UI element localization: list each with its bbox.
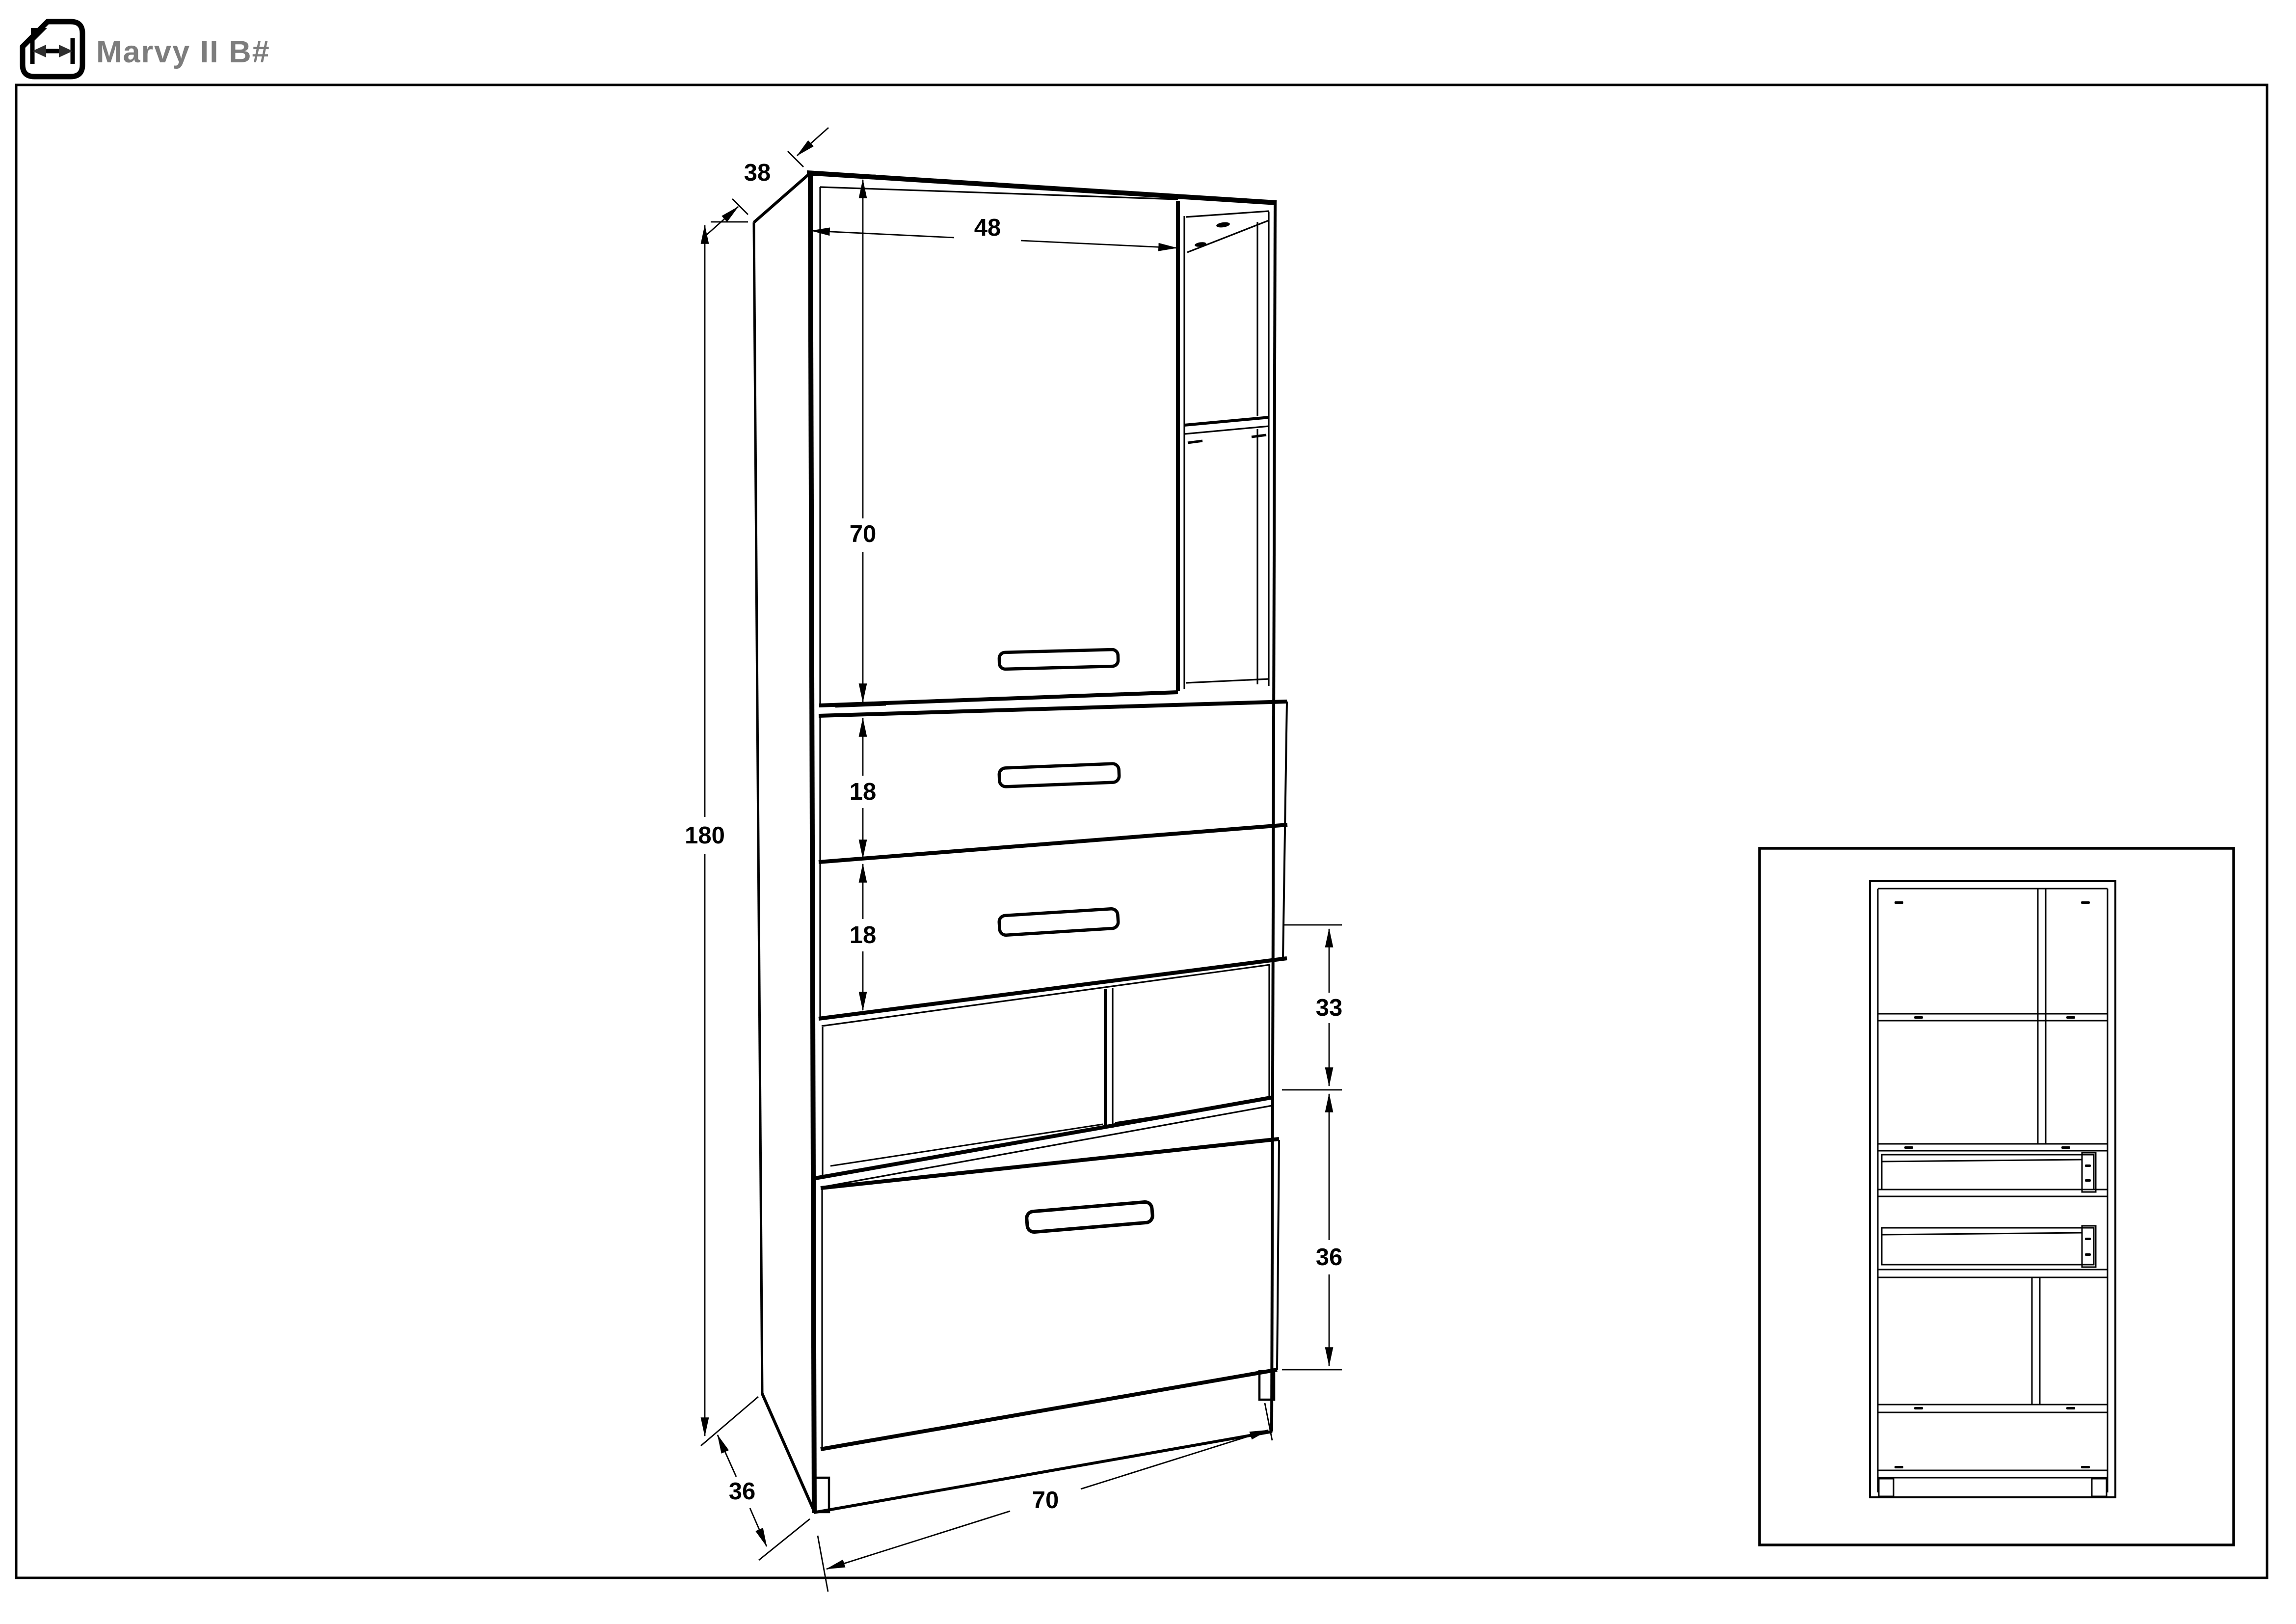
front-view-dividers xyxy=(2032,889,2046,1405)
drawer-fronts xyxy=(819,702,1287,1019)
dimension-label-top-depth: 38 xyxy=(744,160,771,186)
blueprint-canvas: Marvy II B# xyxy=(0,0,2296,1624)
cabinet-isometric-view: 38 48 70 180 xyxy=(685,128,1342,1592)
door-handle xyxy=(999,650,1119,669)
dimension-niche-height: 33 xyxy=(1282,925,1342,1090)
carcass-outline xyxy=(754,172,1277,1513)
front-view-fitting-marks xyxy=(1895,901,2090,1468)
dimension-label-overall-width: 70 xyxy=(1032,1487,1059,1514)
dimension-annotations: 38 48 70 180 xyxy=(685,128,1342,1592)
dimension-label-upper-drawer: 18 xyxy=(850,779,877,805)
dimension-label-niche-height: 33 xyxy=(1316,995,1343,1021)
dimension-door-height: 70 xyxy=(811,175,886,707)
dimension-door-width: 48 xyxy=(811,215,1177,248)
niche-shelf xyxy=(1184,417,1269,425)
cabinet-front-open-view xyxy=(1760,848,2234,1545)
dimension-label-lower-drawer: 18 xyxy=(850,922,877,948)
front-view-drawer-boxes xyxy=(1882,1153,2096,1267)
front-view-feet xyxy=(1879,1479,2107,1496)
top-shelf-niche xyxy=(1184,211,1269,686)
dimension-upper-drawer: 18 xyxy=(850,718,877,858)
dimension-lower-drawer: 18 xyxy=(850,864,877,1010)
dimension-base-depth: 36 xyxy=(701,1397,810,1560)
dimension-label-door-height: 70 xyxy=(850,521,877,547)
bottom-flap-front xyxy=(821,1139,1279,1449)
dimension-label-base-depth: 36 xyxy=(729,1478,756,1505)
flap-handle xyxy=(1026,1201,1153,1232)
dimension-document-icon xyxy=(23,22,82,77)
upper-drawer-handle xyxy=(999,763,1119,787)
lower-open-compartment xyxy=(815,965,1273,1187)
dimension-label-overall-height: 180 xyxy=(685,822,725,849)
dimension-label-flap-height: 36 xyxy=(1316,1244,1343,1271)
left-foot xyxy=(815,1478,829,1512)
page-title: Marvy II B# xyxy=(96,35,270,69)
upper-door-panel xyxy=(819,187,1184,705)
lower-drawer-handle xyxy=(999,908,1119,935)
header: Marvy II B# xyxy=(23,22,270,77)
dimension-label-door-width: 48 xyxy=(974,215,1001,241)
dimension-flap-height: 36 xyxy=(1282,1094,1342,1370)
dimension-overall-width: 70 xyxy=(818,1403,1272,1592)
drawing-border xyxy=(16,85,2267,1578)
dimension-overall-height: 180 xyxy=(685,222,748,1436)
